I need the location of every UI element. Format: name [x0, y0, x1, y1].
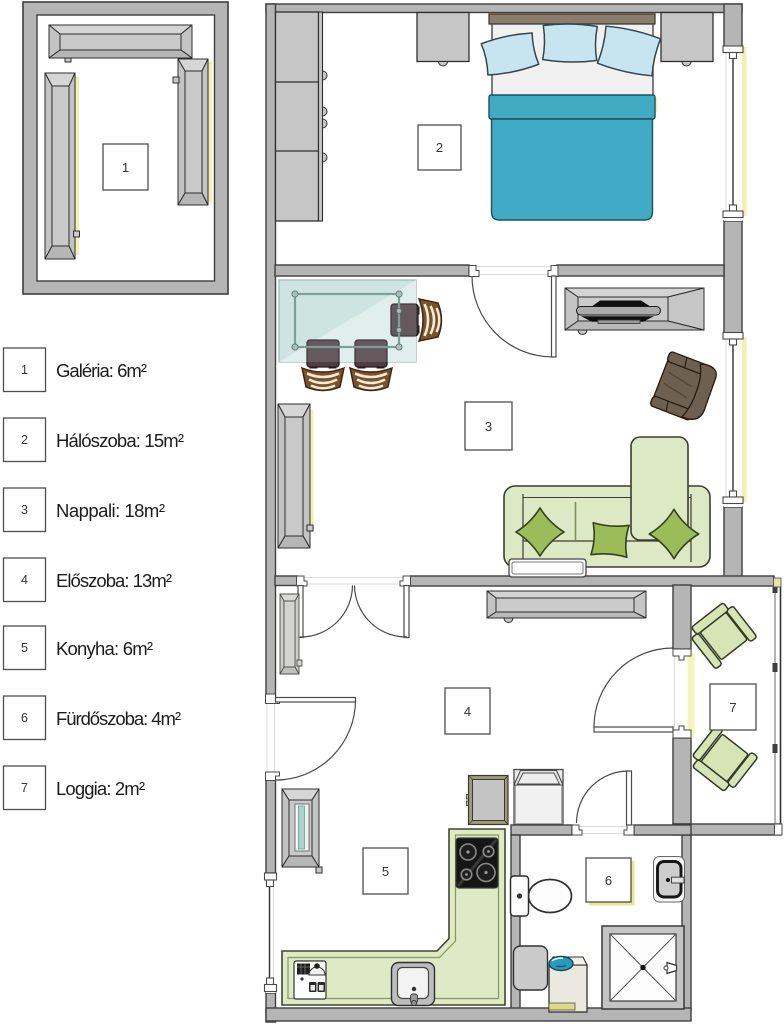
svg-text:Fürdőszoba: 4m²: Fürdőszoba: 4m²: [56, 708, 181, 729]
svg-text:6: 6: [21, 711, 28, 725]
svg-text:2: 2: [21, 433, 28, 447]
svg-text:Loggia: 2m²: Loggia: 2m²: [56, 778, 145, 799]
svg-text:Előszoba: 13m²: Előszoba: 13m²: [56, 570, 172, 591]
svg-text:4: 4: [21, 573, 28, 587]
svg-text:1: 1: [21, 363, 28, 377]
svg-text:Galéria: 6m²: Galéria: 6m²: [56, 360, 147, 381]
svg-text:7: 7: [21, 781, 28, 795]
svg-text:Nappali: 18m²: Nappali: 18m²: [56, 500, 165, 521]
svg-text:Konyha: 6m²: Konyha: 6m²: [56, 638, 153, 659]
svg-text:5: 5: [21, 641, 28, 655]
svg-text:3: 3: [21, 503, 28, 517]
svg-text:Hálószoba: 15m²: Hálószoba: 15m²: [56, 430, 184, 451]
